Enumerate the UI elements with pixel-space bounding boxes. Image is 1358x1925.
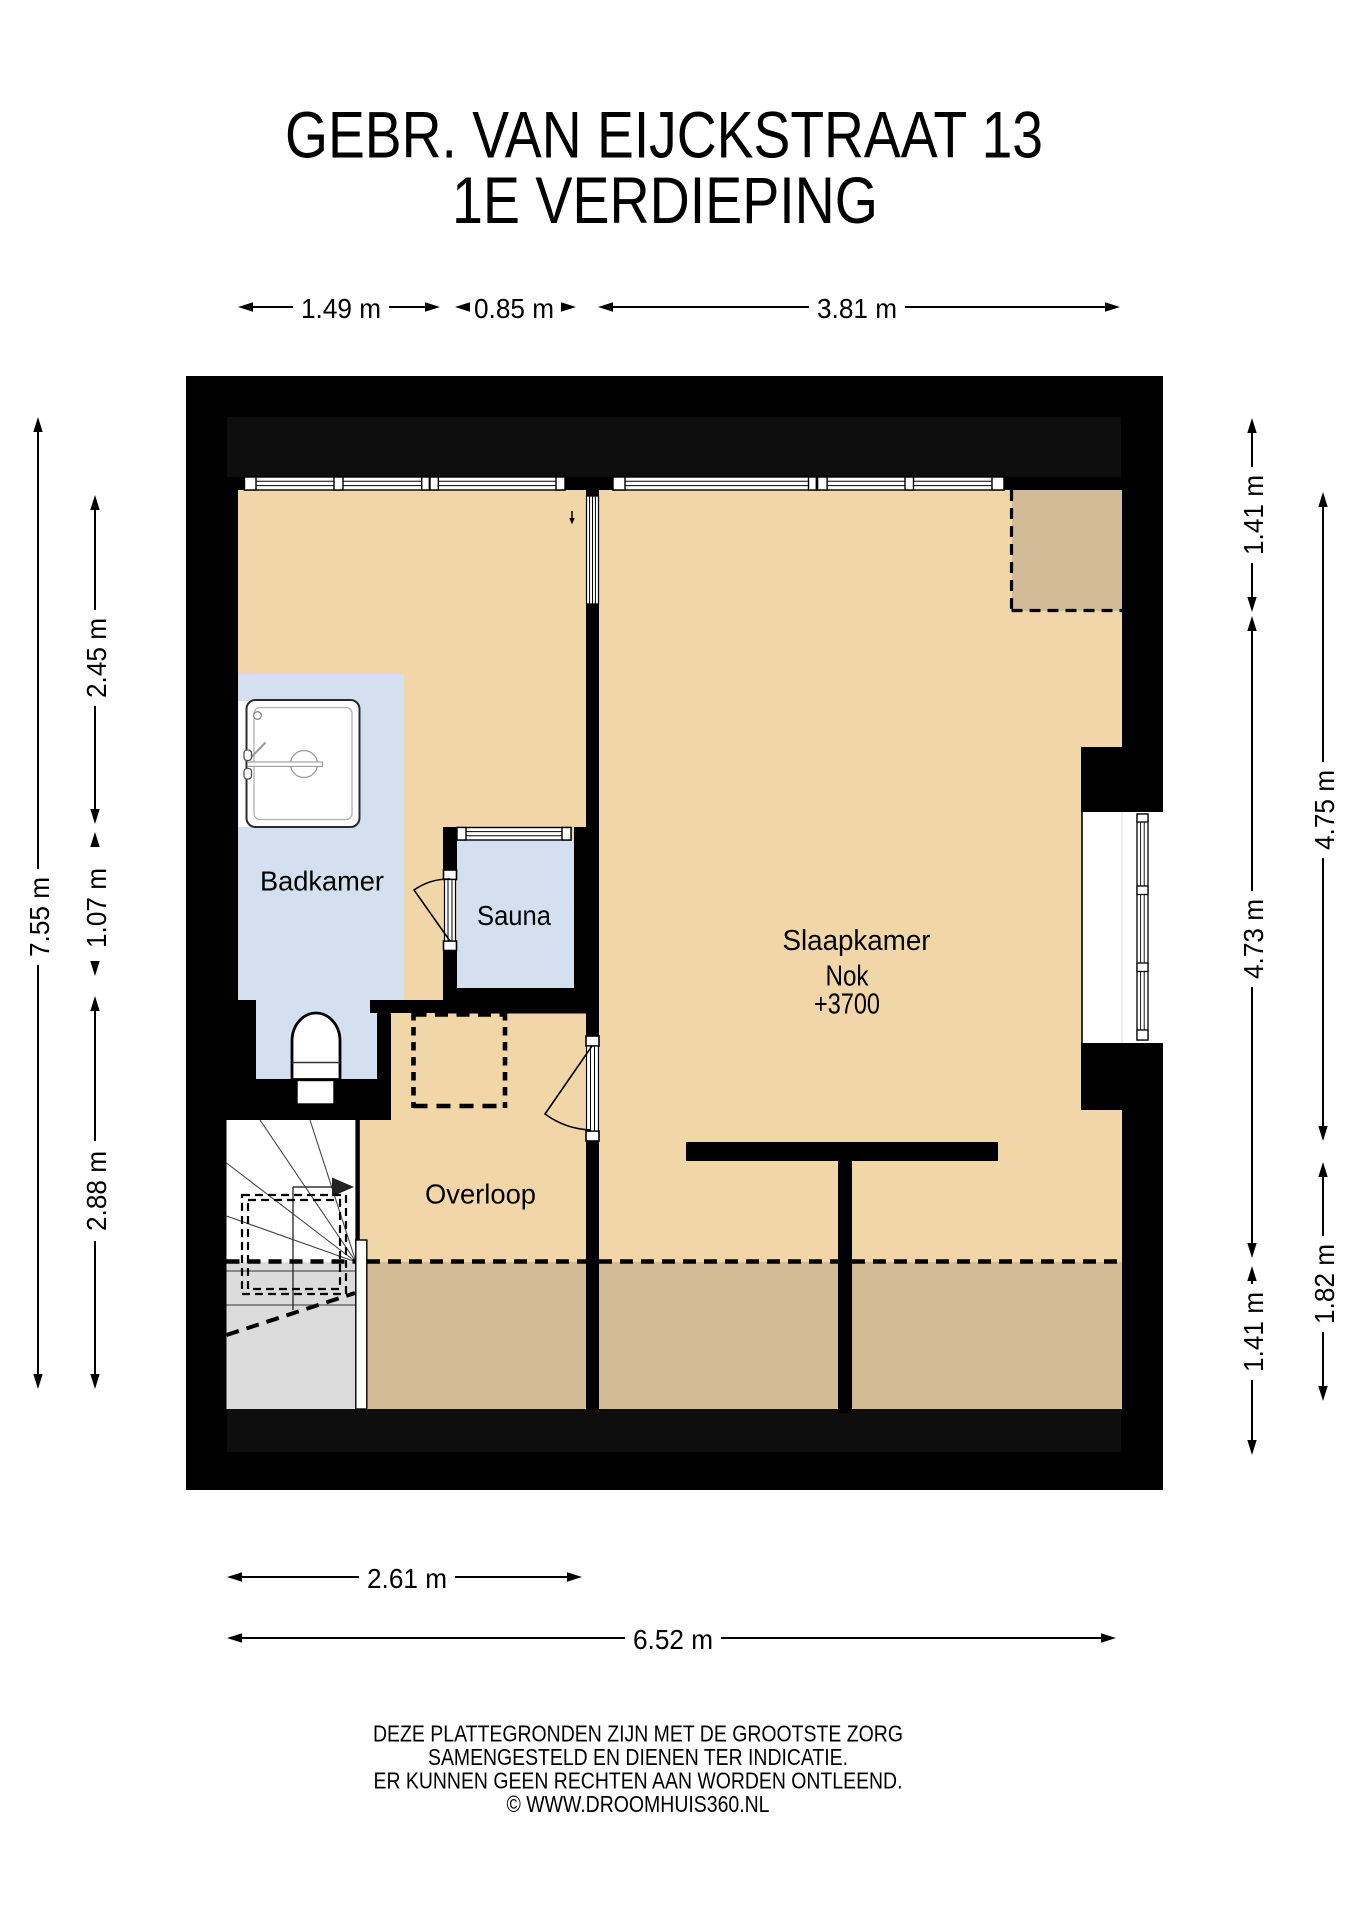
svg-text:1.49 m: 1.49 m [301,293,381,324]
svg-text:ER KUNNEN GEEN RECHTEN AAN WOR: ER KUNNEN GEEN RECHTEN AAN WORDEN ONTLEE… [374,1768,903,1794]
svg-text:0.85 m: 0.85 m [474,293,554,324]
svg-text:6.52 m: 6.52 m [633,1624,713,1655]
svg-text:Sauna: Sauna [477,900,551,931]
svg-text:1.41 m: 1.41 m [1238,475,1269,555]
svg-text:3.81 m: 3.81 m [817,293,897,324]
svg-text:2.61 m: 2.61 m [367,1563,447,1594]
svg-text:DEZE PLATTEGRONDEN ZIJN MET DE: DEZE PLATTEGRONDEN ZIJN MET DE GROOTSTE … [373,1721,903,1747]
svg-text:2.88 m: 2.88 m [81,1151,112,1231]
svg-text:1E VERDIEPING: 1E VERDIEPING [452,163,878,237]
svg-text:4.73 m: 4.73 m [1238,899,1269,979]
svg-text:7.55 m: 7.55 m [24,877,55,957]
svg-text:1.82 m: 1.82 m [1309,1244,1340,1324]
svg-text:2.45 m: 2.45 m [81,618,112,698]
svg-text:4.75 m: 4.75 m [1309,770,1340,850]
svg-text:1.41 m: 1.41 m [1238,1292,1269,1372]
svg-text:+3700: +3700 [814,988,880,1020]
svg-text:GEBR. VAN EIJCKSTRAAT 13: GEBR. VAN EIJCKSTRAAT 13 [285,98,1043,172]
svg-text:© WWW.DROOMHUIS360.NL: © WWW.DROOMHUIS360.NL [507,1791,770,1817]
svg-text:SAMENGESTELD EN DIENEN TER IND: SAMENGESTELD EN DIENEN TER INDICATIE. [428,1744,848,1770]
svg-text:Slaapkamer: Slaapkamer [783,925,931,957]
svg-text:Badkamer: Badkamer [260,866,384,897]
svg-text:1.07 m: 1.07 m [81,868,112,948]
svg-text:Overloop: Overloop [425,1179,536,1210]
